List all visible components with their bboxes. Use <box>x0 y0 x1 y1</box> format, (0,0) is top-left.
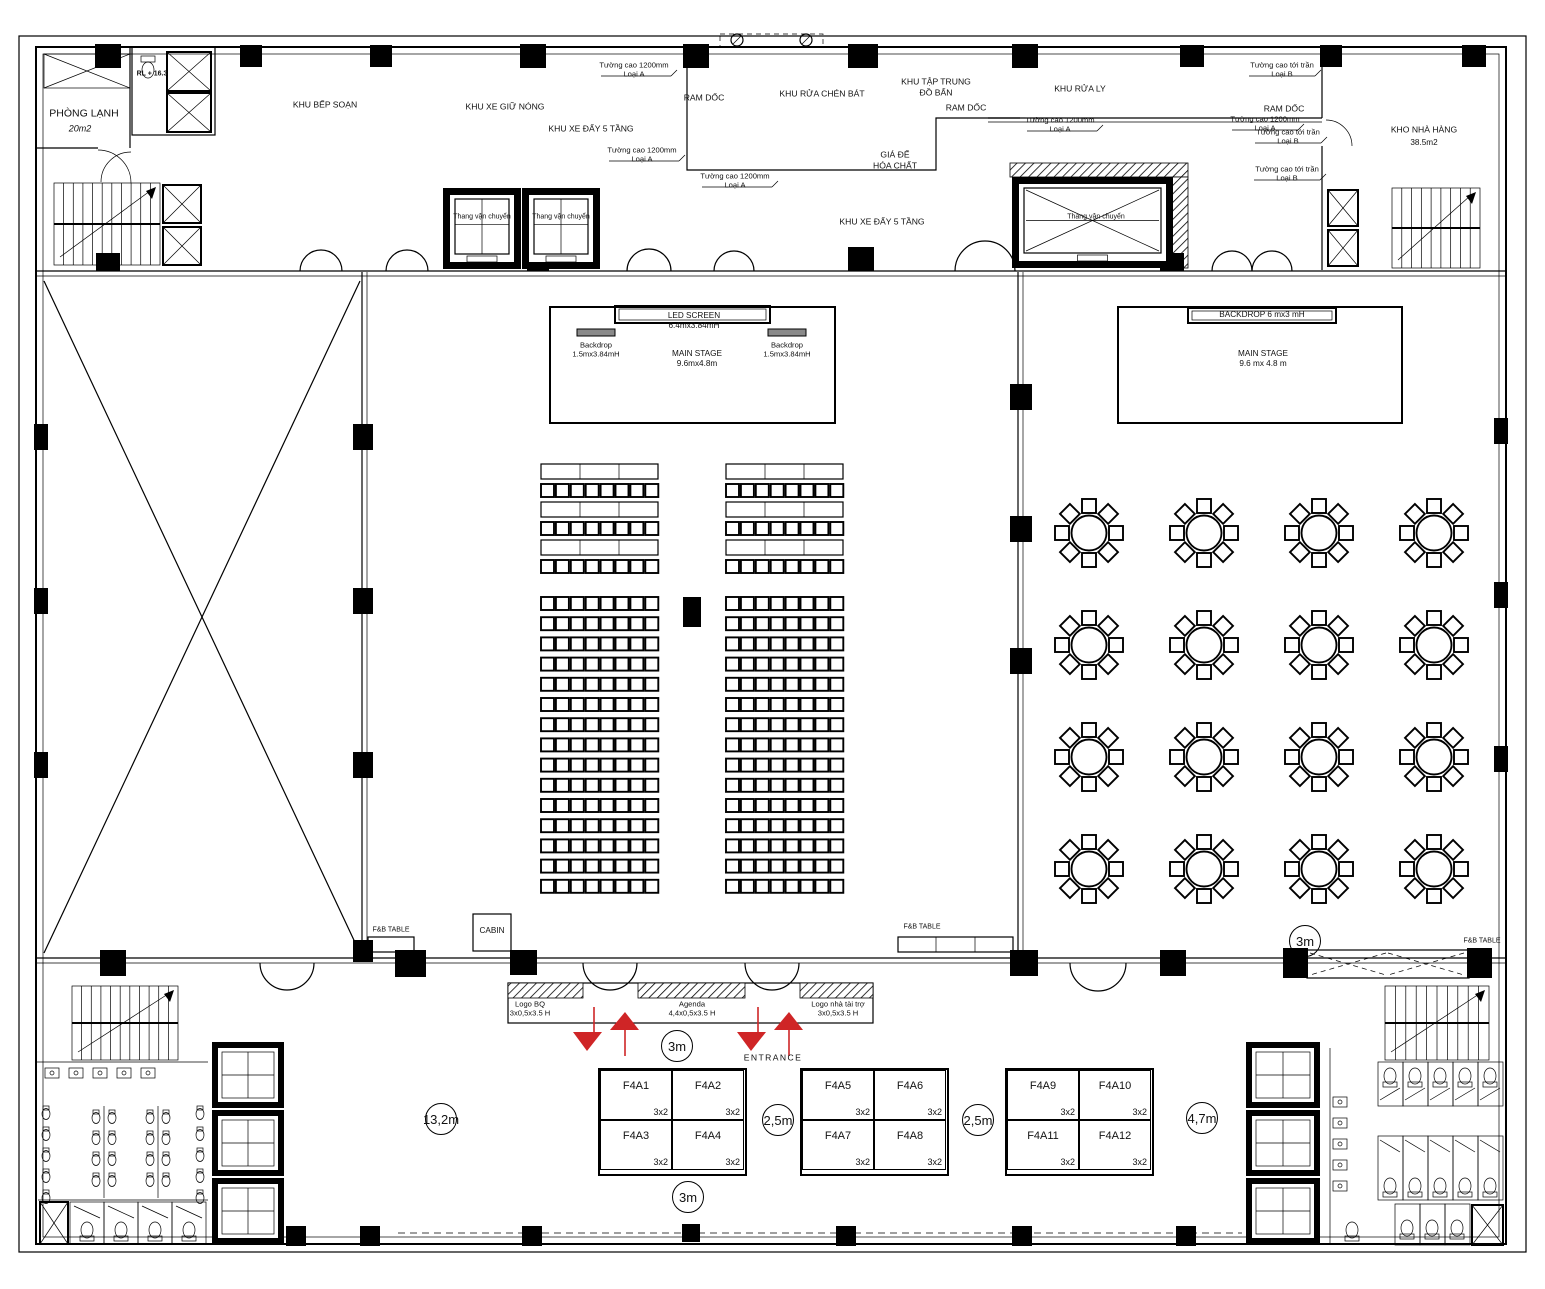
chair <box>1285 750 1299 764</box>
door-arc <box>745 963 772 990</box>
room-label-khu-xe-day-2: KHU XE ĐẨY 5 TẦNG <box>839 217 924 228</box>
stair-arrow-head <box>146 187 156 199</box>
banquet-chair <box>1197 553 1211 567</box>
annotation-ceiling-3: Tường cao tới trần Loại B <box>1255 165 1319 184</box>
chair <box>571 738 584 751</box>
toilet-stall <box>1428 1136 1453 1200</box>
chair <box>616 617 629 630</box>
chair <box>1427 835 1441 849</box>
annotation-ceiling-2: Tường cao tới trần Loại B <box>1256 128 1320 147</box>
chair <box>786 738 799 751</box>
chair <box>630 698 643 711</box>
room-label-gia-de-hoa-chat: GIÁ ĐỂ HÓA CHẤT <box>873 149 917 170</box>
chair <box>586 880 599 893</box>
chair <box>830 718 843 731</box>
pillar <box>1176 1226 1196 1246</box>
sink-fixture <box>1333 1097 1347 1107</box>
chair <box>815 779 828 792</box>
sink-basin <box>1338 1121 1342 1125</box>
chair <box>801 839 814 852</box>
booth-id: F4A3 <box>601 1130 671 1142</box>
chair <box>645 860 658 873</box>
chair <box>741 880 754 893</box>
chair <box>1427 777 1441 791</box>
chair <box>786 860 799 873</box>
chair <box>616 799 629 812</box>
stall-door <box>142 1206 168 1218</box>
door-arc <box>386 250 407 271</box>
chair <box>726 484 739 497</box>
pillar <box>1494 746 1508 772</box>
wc-fixture <box>1409 1068 1421 1084</box>
chair <box>616 759 629 772</box>
chair <box>771 617 784 630</box>
chair <box>1197 777 1211 791</box>
chair <box>726 658 739 671</box>
chair <box>756 880 769 893</box>
booth-id: F4A8 <box>875 1130 945 1142</box>
chair <box>756 759 769 772</box>
chair <box>1312 777 1326 791</box>
chair <box>726 779 739 792</box>
pillar <box>1160 950 1186 976</box>
chair <box>801 799 814 812</box>
banquet-chair <box>1055 526 1069 540</box>
chair <box>616 597 629 610</box>
booth-id: F4A5 <box>803 1080 873 1092</box>
chair <box>815 698 828 711</box>
shaft-xbox <box>163 227 201 265</box>
banquet-chair <box>1082 835 1096 849</box>
toilet-stall <box>1453 1136 1478 1200</box>
band-logo-bq <box>508 983 583 998</box>
chair <box>741 560 754 573</box>
chair <box>830 617 843 630</box>
banquet-chair <box>1427 835 1441 849</box>
chair <box>630 678 643 691</box>
chair <box>1400 526 1414 540</box>
chair <box>771 738 784 751</box>
chair <box>815 522 828 535</box>
chair <box>786 819 799 832</box>
banquet-chair <box>1197 611 1211 625</box>
chair <box>556 860 569 873</box>
sink-fixture <box>93 1068 107 1078</box>
chair <box>1454 750 1468 764</box>
chair <box>1170 750 1184 764</box>
banquet-chair <box>1400 862 1414 876</box>
chair <box>741 799 754 812</box>
chair <box>756 617 769 630</box>
chair <box>586 678 599 691</box>
chair <box>586 658 599 671</box>
banquet-chair <box>1312 499 1326 513</box>
chair <box>541 860 554 873</box>
chair <box>601 799 614 812</box>
booth-f4a3: F4A33x2 <box>600 1120 672 1170</box>
service-lift <box>1012 177 1173 268</box>
chair <box>601 738 614 751</box>
pillar <box>353 588 373 614</box>
stall-door <box>1430 1088 1450 1100</box>
chair <box>556 637 569 650</box>
chair <box>741 759 754 772</box>
chair <box>771 597 784 610</box>
chair <box>786 658 799 671</box>
chair <box>801 698 814 711</box>
chair <box>1224 638 1238 652</box>
door-arc <box>1272 251 1292 271</box>
chair <box>786 779 799 792</box>
sink-fixture <box>117 1068 131 1078</box>
banquet-chair <box>1197 723 1211 737</box>
chair <box>616 637 629 650</box>
chair <box>801 738 814 751</box>
chair <box>586 860 599 873</box>
stall-door <box>1405 1088 1425 1100</box>
booth-id: F4A6 <box>875 1080 945 1092</box>
chair <box>586 759 599 772</box>
chair <box>601 759 614 772</box>
room-label-ram-doc-2: RAM DỐC <box>946 103 987 114</box>
chair <box>586 779 599 792</box>
chair <box>801 597 814 610</box>
chair <box>645 819 658 832</box>
pillar <box>1010 648 1032 674</box>
chair <box>786 839 799 852</box>
pillar <box>522 1226 542 1246</box>
chair <box>726 597 739 610</box>
room-label-khu-xe-day-1: KHU XE ĐẨY 5 TẦNG <box>548 124 633 135</box>
chair <box>541 637 554 650</box>
band-label-logo-bq: Logo BQ 3x0,5x3.5 H <box>510 1000 551 1019</box>
chair <box>801 560 814 573</box>
chair <box>541 738 554 751</box>
pillar <box>836 1226 856 1246</box>
banquet-chair <box>1082 553 1096 567</box>
chair <box>830 484 843 497</box>
door-arc-cold-room-2 <box>101 152 131 182</box>
banquet-chair <box>1197 777 1211 791</box>
chair <box>541 658 554 671</box>
wc-fixture <box>1459 1178 1471 1194</box>
elevator <box>1246 1110 1320 1176</box>
floor-plan-drawing <box>0 0 1545 1289</box>
chair <box>726 819 739 832</box>
lift-label-3: Thang vận chuyển <box>1067 214 1125 223</box>
chair <box>1109 862 1123 876</box>
chair <box>1170 526 1184 540</box>
chair <box>756 484 769 497</box>
wc-fixture <box>81 1222 93 1238</box>
chair <box>630 522 643 535</box>
sink-basin <box>122 1071 126 1075</box>
banquet-chair <box>1170 638 1184 652</box>
wc-tank-top <box>141 56 155 62</box>
chair <box>1400 862 1414 876</box>
room-label-khu-bep-soan: KHU BẾP SOẠN <box>293 100 357 111</box>
floor-plan-sheet: PHÒNG LẠNH 20m2 RL + 16.3 KHU BẾP SOẠN K… <box>0 0 1545 1289</box>
chair <box>726 698 739 711</box>
chair <box>1082 889 1096 903</box>
chair <box>616 738 629 751</box>
wc-fixture <box>1346 1222 1358 1238</box>
banquet-table <box>1302 852 1337 887</box>
banquet-chair <box>1082 665 1096 679</box>
pillar <box>1462 45 1486 67</box>
banquet-chair <box>1197 499 1211 513</box>
chair <box>1170 638 1184 652</box>
chair <box>645 759 658 772</box>
chair <box>1427 723 1441 737</box>
pillar <box>1010 516 1032 542</box>
chair <box>586 819 599 832</box>
chair <box>786 759 799 772</box>
chair <box>1454 862 1468 876</box>
chair <box>830 799 843 812</box>
door-arc <box>583 963 610 990</box>
chair <box>815 738 828 751</box>
booth-id: F4A12 <box>1080 1130 1150 1142</box>
chair <box>1082 835 1096 849</box>
chair <box>830 522 843 535</box>
chair <box>1312 611 1326 625</box>
banquet-table <box>1302 628 1337 663</box>
pillar <box>240 45 262 67</box>
chair <box>616 819 629 832</box>
chair <box>601 860 614 873</box>
pillar <box>1012 1226 1032 1246</box>
head-table <box>541 464 658 479</box>
chair <box>756 718 769 731</box>
chair <box>830 637 843 650</box>
chair <box>756 799 769 812</box>
door-arc-cold-room <box>98 150 131 183</box>
chair <box>1197 611 1211 625</box>
chair <box>786 597 799 610</box>
banquet-chair <box>1197 889 1211 903</box>
chair <box>645 637 658 650</box>
room-label-khu-xe-giu-nong: KHU XE GIỮ NÓNG <box>466 102 545 113</box>
chair <box>630 560 643 573</box>
banquet-chair <box>1109 526 1123 540</box>
chair <box>771 522 784 535</box>
chair <box>815 860 828 873</box>
pillar <box>848 44 878 68</box>
chair <box>541 799 554 812</box>
banquet-chair <box>1170 750 1184 764</box>
chair <box>771 839 784 852</box>
chair <box>645 718 658 731</box>
chair <box>1197 499 1211 513</box>
chair <box>801 658 814 671</box>
chair <box>630 779 643 792</box>
chair <box>616 522 629 535</box>
chair <box>726 860 739 873</box>
chair <box>1312 553 1326 567</box>
chair <box>571 560 584 573</box>
pillar <box>95 44 121 68</box>
chair <box>786 484 799 497</box>
wc-fixture <box>1384 1068 1396 1084</box>
chair <box>830 819 843 832</box>
chair <box>771 759 784 772</box>
room-label-phong-lanh: PHÒNG LẠNH <box>49 107 118 120</box>
head-table <box>541 502 658 517</box>
chair <box>1454 638 1468 652</box>
sink-basin <box>1338 1184 1342 1188</box>
chair <box>1339 862 1353 876</box>
banquet-table <box>1187 852 1222 887</box>
banquet-chair <box>1454 526 1468 540</box>
door-arc <box>407 250 428 271</box>
booth-f4a11: F4A113x2 <box>1007 1120 1079 1170</box>
chair <box>586 839 599 852</box>
banquet-chair <box>1312 553 1326 567</box>
chair <box>1197 723 1211 737</box>
door-arc <box>300 250 321 271</box>
banquet-chair <box>1197 835 1211 849</box>
chair <box>1339 526 1353 540</box>
door-arc <box>955 241 985 271</box>
chair <box>630 880 643 893</box>
chair <box>556 759 569 772</box>
sink-basin <box>1338 1142 1342 1146</box>
door-arc <box>734 251 754 271</box>
chair <box>630 819 643 832</box>
chair <box>556 880 569 893</box>
sink-fixture <box>1333 1118 1347 1128</box>
sink-fixture <box>45 1068 59 1078</box>
booth-size: 3x2 <box>725 1107 740 1117</box>
room-label-phong-lanh-area: 20m2 <box>69 123 92 134</box>
pillar <box>682 1224 700 1242</box>
booth-id: F4A4 <box>673 1130 743 1142</box>
booth-id: F4A1 <box>601 1080 671 1092</box>
chair <box>586 698 599 711</box>
banquet-chair <box>1454 862 1468 876</box>
chair <box>830 658 843 671</box>
chair <box>726 759 739 772</box>
banquet-table <box>1417 740 1452 775</box>
chair <box>815 718 828 731</box>
chair <box>1082 777 1096 791</box>
chair <box>616 779 629 792</box>
chair <box>1427 553 1441 567</box>
sink-fixture <box>69 1068 83 1078</box>
chair <box>756 522 769 535</box>
sink-basin <box>1338 1163 1342 1167</box>
banquet-chair <box>1285 750 1299 764</box>
wc-tank <box>1433 1082 1447 1087</box>
chair <box>556 617 569 630</box>
banquet-area <box>1055 499 1468 903</box>
chair <box>815 658 828 671</box>
chair <box>1312 889 1326 903</box>
chair <box>630 759 643 772</box>
chair <box>645 698 658 711</box>
banquet-table <box>1072 628 1107 663</box>
booth-f4a2: F4A23x2 <box>672 1070 744 1120</box>
stage-right-backdrop-label: BACKDROP 6 mx3 mH <box>1219 310 1304 320</box>
banquet-chair <box>1312 889 1326 903</box>
chair <box>1285 526 1299 540</box>
chair <box>616 698 629 711</box>
annotation-ceiling-1: Tường cao tới trần Loại B <box>1250 61 1314 80</box>
chair <box>830 698 843 711</box>
chair <box>1197 553 1211 567</box>
wc-tank <box>1483 1082 1497 1087</box>
dimension-aisle-2: 3m <box>672 1181 704 1213</box>
fnb-label-mid: F&B TABLE <box>903 924 940 933</box>
chair <box>741 637 754 650</box>
chair <box>1197 665 1211 679</box>
stall-door <box>176 1206 202 1218</box>
chair <box>616 678 629 691</box>
chair <box>815 799 828 812</box>
chair <box>571 678 584 691</box>
chair <box>630 597 643 610</box>
banquet-chair <box>1427 553 1441 567</box>
door-arc-kho <box>1326 120 1352 146</box>
chair <box>630 718 643 731</box>
banquet-table <box>1187 628 1222 663</box>
service-lift <box>522 188 600 269</box>
stairs <box>1392 188 1480 268</box>
booth-f4a5: F4A53x2 <box>802 1070 874 1120</box>
banquet-table <box>1072 852 1107 887</box>
chair <box>771 819 784 832</box>
chair <box>1082 611 1096 625</box>
chair <box>571 522 584 535</box>
banquet-table <box>1072 740 1107 775</box>
booth-size: 3x2 <box>855 1107 870 1117</box>
sink-fixture <box>141 1068 155 1078</box>
chair <box>1312 723 1326 737</box>
door-arc <box>627 249 649 271</box>
chair <box>541 819 554 832</box>
chair <box>1170 862 1184 876</box>
banquet-chair <box>1339 750 1353 764</box>
banquet-chair <box>1339 526 1353 540</box>
chair <box>1400 638 1414 652</box>
theater-block-1 <box>541 464 658 893</box>
wc-fixture <box>1384 1178 1396 1194</box>
chair <box>756 658 769 671</box>
wc-fixture <box>1434 1068 1446 1084</box>
chair <box>630 860 643 873</box>
fnb-label-right: F&B TABLE <box>1463 938 1500 947</box>
chair <box>786 617 799 630</box>
chair <box>556 658 569 671</box>
banquet-chair <box>1285 638 1299 652</box>
chair <box>571 779 584 792</box>
chair <box>1427 611 1441 625</box>
chair <box>541 698 554 711</box>
pillar <box>370 45 392 67</box>
pillar <box>520 44 546 68</box>
sink-fixture <box>1333 1181 1347 1191</box>
dimension-lobby-left: 13,2m <box>425 1103 457 1135</box>
chair <box>571 617 584 630</box>
chair <box>801 819 814 832</box>
fnb-table-mid <box>898 937 1013 952</box>
banquet-chair <box>1082 723 1096 737</box>
chair <box>630 658 643 671</box>
banquet-table <box>1187 740 1222 775</box>
chair <box>630 617 643 630</box>
wc-tank <box>1408 1082 1422 1087</box>
